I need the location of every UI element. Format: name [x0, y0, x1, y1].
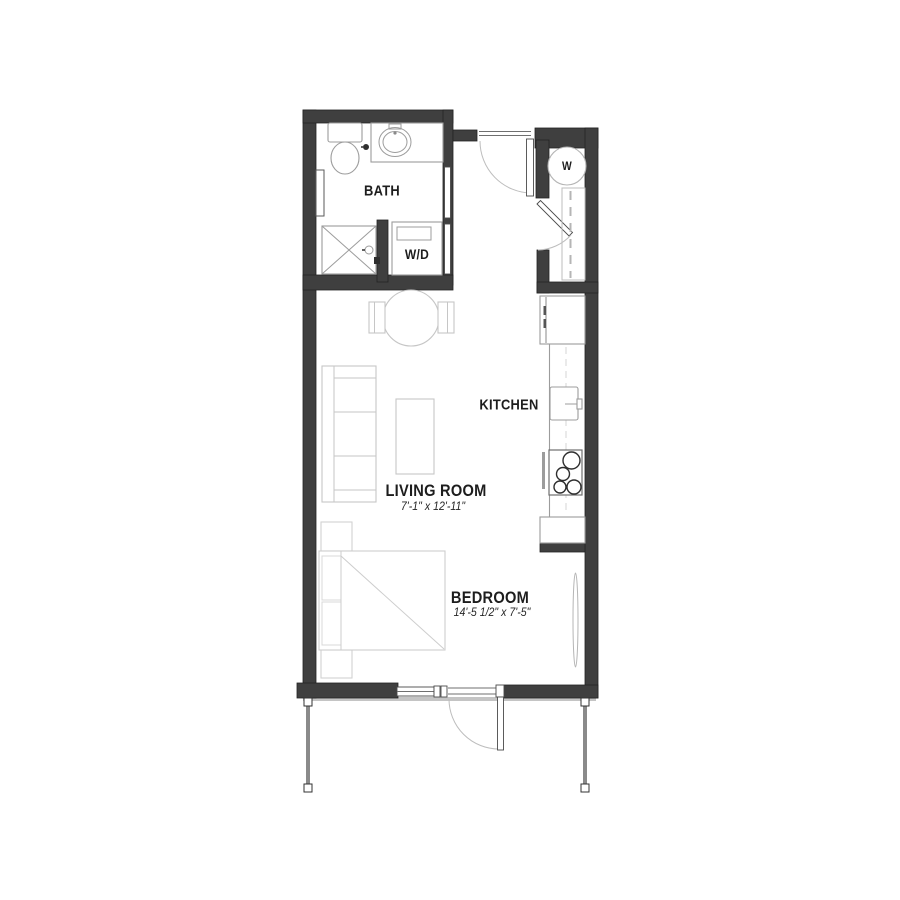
living-room-label: LIVING ROOM [385, 481, 486, 501]
bath-pocket-door [445, 167, 451, 218]
window-mullion-1 [434, 686, 440, 697]
nightstand-top [321, 522, 352, 551]
nightstand-bottom [321, 650, 352, 678]
living-room [322, 290, 454, 502]
closet-door-swing [538, 235, 571, 250]
railing-left-post-top [304, 698, 312, 706]
bath-wall-niche [316, 170, 324, 216]
sofa [322, 366, 376, 502]
valve-symbol [363, 144, 369, 150]
refrigerator-handle-2 [544, 319, 547, 328]
toilet-tank [328, 123, 362, 142]
wall-shower-divider [377, 220, 388, 282]
railing-right-post-top [581, 698, 589, 706]
wall-top [303, 110, 453, 123]
wall-left [303, 110, 316, 698]
oven-handle [542, 452, 545, 489]
wall-right [585, 128, 598, 698]
toilet-bowl [331, 142, 359, 174]
window-mullion-2 [441, 686, 447, 697]
refrigerator [540, 296, 585, 344]
patio-door-swing [449, 699, 499, 749]
dining-chair-right [438, 302, 454, 333]
kitchen-faucet-base [577, 399, 582, 409]
railing-left-post-bottom [304, 784, 312, 792]
laundry-label: W/D [405, 246, 429, 262]
water-heater-label: W [562, 159, 572, 173]
railing-left [306, 702, 310, 786]
bedroom [319, 522, 578, 678]
bath-drain [393, 131, 396, 134]
bedroom-label: BEDROOM [451, 588, 529, 608]
dining-table [383, 290, 439, 346]
base-cabinet [540, 517, 585, 543]
patio-door-jamb [496, 685, 504, 697]
kitchen-label: KITCHEN [479, 397, 538, 414]
laundry-pocket-door [445, 224, 451, 274]
bedroom-dimensions: 14'-5 1/2" x 7'-5" [454, 607, 531, 619]
balcony [304, 698, 589, 792]
wall-closet-left-upper [536, 140, 549, 198]
floor-plan-drawing [0, 0, 900, 900]
closet-door-leaf [537, 201, 573, 237]
wall-entry-jamb [453, 130, 477, 141]
wall-bottom-right [504, 685, 598, 698]
wall-bottom-left [297, 683, 398, 698]
kitchen [540, 296, 585, 543]
entry-door-swing [480, 141, 531, 193]
living-room-dimensions: 7'-1" x 12'-11" [401, 501, 465, 513]
shower-control-box [374, 257, 380, 264]
wall-mirror [573, 573, 578, 667]
refrigerator-handle-1 [544, 306, 547, 315]
wall-closet-bottom [537, 282, 598, 293]
patio-door-leaf [498, 697, 504, 750]
bottom-openings [397, 685, 504, 750]
coffee-table [396, 399, 434, 474]
wall-kitchen-end [540, 543, 585, 552]
dining-chair-left [369, 302, 385, 333]
floor-plan: BATH W/D KITCHEN LIVING ROOM 7'-1" x 12'… [0, 0, 900, 900]
entry-door-leaf [527, 139, 534, 196]
bath-label: BATH [364, 183, 400, 200]
closet-shelf [562, 188, 585, 280]
railing-right-post-bottom [581, 784, 589, 792]
railing-right [583, 702, 587, 786]
